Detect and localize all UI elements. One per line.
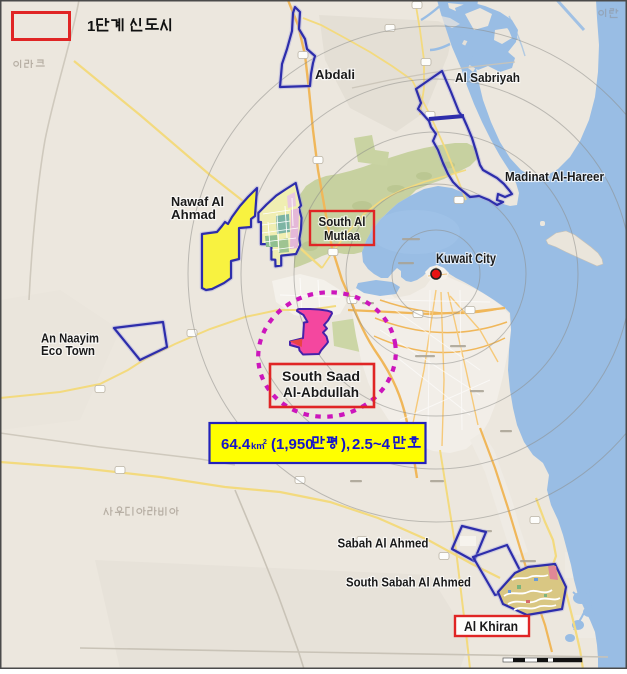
- svg-text:64.4: 64.4: [221, 436, 251, 453]
- svg-text:Eco Town: Eco Town: [41, 344, 95, 358]
- svg-text:Madinat Al-Hareer: Madinat Al-Hareer: [505, 169, 604, 184]
- svg-text:Kuwait City: Kuwait City: [436, 251, 496, 266]
- svg-text:Ahmad: Ahmad: [171, 207, 216, 222]
- svg-text:South Sabah Al Ahmed: South Sabah Al Ahmed: [346, 575, 471, 590]
- svg-text:Al Khiran: Al Khiran: [464, 619, 518, 634]
- svg-text:2.5~4: 2.5~4: [352, 436, 391, 453]
- svg-text:Al-Abdullah: Al-Abdullah: [283, 385, 359, 400]
- svg-text:South Saad: South Saad: [282, 369, 360, 384]
- svg-text:1: 1: [87, 18, 95, 35]
- svg-text:Al Sabriyah: Al Sabriyah: [455, 70, 520, 85]
- svg-text:Abdali: Abdali: [315, 67, 355, 82]
- svg-text:2: 2: [263, 439, 267, 446]
- svg-text:Mutlaa: Mutlaa: [324, 229, 361, 243]
- svg-text:South Al: South Al: [319, 215, 366, 229]
- svg-text:(1,950: (1,950: [271, 436, 314, 453]
- svg-text:Sabah Al Ahmed: Sabah Al Ahmed: [338, 536, 429, 551]
- svg-text:),: ),: [341, 436, 350, 453]
